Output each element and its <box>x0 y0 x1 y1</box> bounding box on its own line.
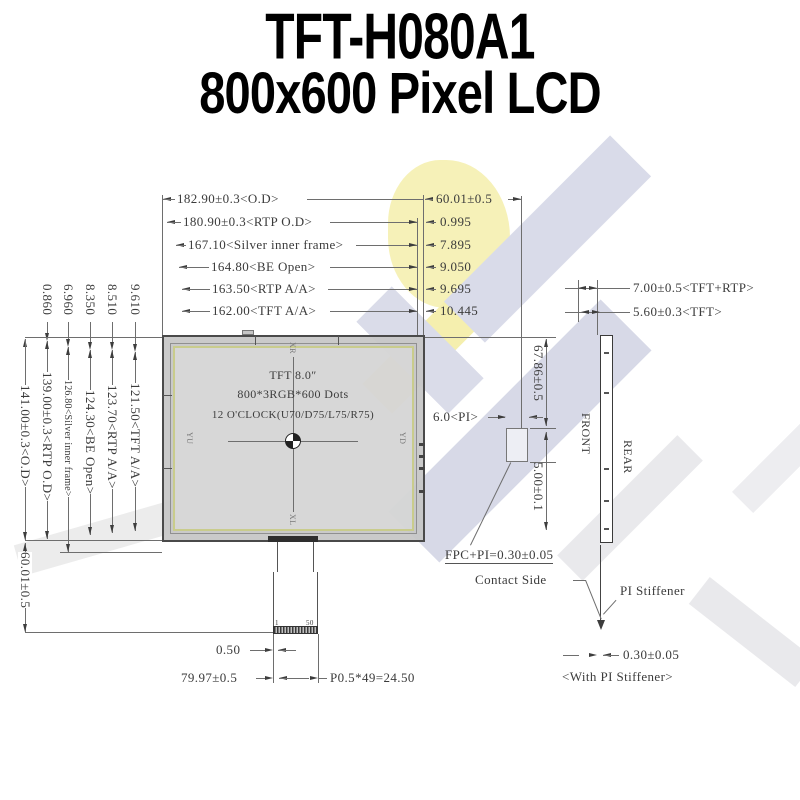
panel-size-label: TFT 8.0″ <box>223 368 363 382</box>
dim-pitch: P0.5*49=24.50 <box>330 671 415 685</box>
dimension-line <box>167 222 181 223</box>
extension-line <box>25 337 162 338</box>
fpc-pin1-label: 1 <box>275 616 279 630</box>
arrowhead <box>45 341 49 349</box>
arrowhead <box>589 653 597 657</box>
fpc-pin50-label: 50 <box>306 616 314 630</box>
dimension-line <box>426 222 436 223</box>
dimension-line <box>182 289 210 290</box>
dim-tft-aa-width: 162.00<TFT A/A> <box>212 304 316 318</box>
arrowhead <box>409 265 417 269</box>
side-view-tick <box>604 500 609 502</box>
dim-gap-500: 5.00±0.1 <box>531 462 545 511</box>
side-rear-label: REAR <box>621 440 635 474</box>
arrowhead <box>66 347 70 355</box>
arrowhead <box>23 532 27 540</box>
dimension-line <box>182 311 210 312</box>
panel-dots-label: 800*3RGB*600 Dots <box>203 387 383 401</box>
arrowhead <box>66 544 70 552</box>
side-view-body <box>600 335 613 543</box>
arrowhead <box>265 676 273 680</box>
dimension-line <box>426 267 436 268</box>
arrowhead <box>23 624 27 632</box>
dim-fpc-right: 60.01±0.5 <box>436 192 492 206</box>
arrowhead <box>409 309 417 313</box>
bezel-tick <box>255 336 256 345</box>
offset-6960: 6.960 <box>61 284 75 315</box>
dimension-line <box>319 678 327 679</box>
dimension-line <box>546 339 547 426</box>
dim-rtp-od-height: 139.00±0.3<RTP O.D> <box>40 372 54 501</box>
extension-line <box>162 195 163 335</box>
extension-line <box>417 218 418 335</box>
offset-0860: 0.860 <box>40 284 54 315</box>
arrowhead <box>133 523 137 531</box>
arrowhead <box>498 415 506 419</box>
connector-tick <box>419 490 425 493</box>
arrowhead <box>310 676 318 680</box>
extension-line <box>25 632 273 633</box>
dim-rtp-aa-height: 123.70<RTP A/A> <box>105 385 119 489</box>
dim-pi-width: 6.0<PI> <box>433 410 478 424</box>
dim-silver-frame-width: 167.10<Silver inner frame> <box>188 238 343 252</box>
dim-total-thickness: 7.00±0.5<TFT+RTP> <box>633 281 754 295</box>
side-view-tick <box>604 528 609 530</box>
dimension-line <box>529 417 543 418</box>
side-view-tick <box>604 468 609 470</box>
extension-line <box>135 322 136 344</box>
dim-silver-frame-height: 126.80<Silver inner frame> <box>60 380 74 497</box>
dim-be-open-height: 124.30<BE Open> <box>83 390 97 494</box>
direction-label-left: YU <box>182 432 196 444</box>
dim-be-open-width: 164.80<BE Open> <box>211 260 315 274</box>
dimension-line <box>278 650 296 651</box>
dim-rtp-aa-width: 163.50<RTP A/A> <box>212 282 316 296</box>
dimension-line <box>250 650 265 651</box>
dimension-line <box>356 245 417 246</box>
connector-tick <box>419 455 425 458</box>
arrowhead <box>578 286 586 290</box>
arrowhead <box>133 352 137 360</box>
direction-label-bottom: XL <box>285 514 299 525</box>
arrowhead <box>110 525 114 533</box>
dim-offset-7895: 7.895 <box>440 238 471 252</box>
extension-line <box>112 322 113 342</box>
dim-offset-0995: 0.995 <box>440 215 471 229</box>
side-view-tick <box>604 352 609 354</box>
extension-line <box>521 196 522 428</box>
note-fpc-pi: FPC+PI=0.30±0.05 <box>445 548 553 564</box>
direction-label-top: XR <box>285 342 299 354</box>
arrowhead <box>88 527 92 535</box>
panel-clock-label: 12 O'CLOCK(U70/D75/L75/R75) <box>193 408 393 422</box>
arrowhead <box>409 287 417 291</box>
connector-tick <box>419 443 425 446</box>
arrowhead <box>66 339 70 347</box>
product-resolution-title: 800x600 Pixel LCD <box>64 59 736 127</box>
dimension-line <box>256 678 265 679</box>
arrowhead <box>110 342 114 350</box>
arrowhead <box>544 522 548 530</box>
dimension-line <box>330 267 417 268</box>
note-with-stiffener: <With PI Stiffener> <box>562 670 673 684</box>
dim-od-height: 141.00±0.3<O.D> <box>18 385 32 487</box>
extension-line <box>423 195 424 335</box>
offset-8510: 8.510 <box>105 284 119 315</box>
dim-rtp-od-width: 180.90±0.3<RTP O.D> <box>183 215 312 229</box>
extension-line <box>318 634 319 683</box>
connector-tick <box>419 467 425 470</box>
dimension-line <box>307 199 423 200</box>
dim-height-6786: 67.86±0.5 <box>531 345 545 401</box>
dim-050: 0.50 <box>216 643 240 657</box>
dimension-line <box>603 655 619 656</box>
dim-od-width: 182.90±0.3<O.D> <box>177 192 279 206</box>
leader-line <box>603 600 616 615</box>
arrowhead <box>88 350 92 358</box>
arrowhead <box>45 531 49 539</box>
extension-line <box>425 337 556 338</box>
arrowhead <box>88 342 92 350</box>
dim-offset-9050: 9.050 <box>440 260 471 274</box>
arrowhead <box>409 220 417 224</box>
dim-tft-thickness: 5.60±0.3<TFT> <box>633 305 722 319</box>
centroid-symbol <box>285 433 301 449</box>
dimension-line <box>565 288 630 289</box>
dimension-line <box>163 199 175 200</box>
bezel-tick <box>163 395 172 396</box>
bezel-tick <box>163 468 172 469</box>
dimension-line <box>426 289 436 290</box>
dimension-line <box>330 311 417 312</box>
dimension-line <box>426 245 436 246</box>
offset-9610: 9.610 <box>128 284 142 315</box>
dim-7997: 79.97±0.5 <box>181 671 237 685</box>
dim-fpc-length-left: 60.01±0.5 <box>18 552 32 608</box>
note-pi-stiffener: PI Stiffener <box>620 584 685 598</box>
side-front-label: FRONT <box>579 413 593 454</box>
arrowhead <box>23 543 27 551</box>
dimension-line <box>425 199 433 200</box>
dimension-line <box>426 311 436 312</box>
arrowhead <box>544 432 548 440</box>
arrowhead <box>265 648 273 652</box>
arrowhead <box>597 620 605 630</box>
arrowhead <box>513 197 521 201</box>
dim-tft-aa-height: 121.50<TFT A/A> <box>128 383 142 487</box>
dimension-line <box>179 267 209 268</box>
dimension-line <box>546 432 547 530</box>
stiffener-line <box>600 545 601 625</box>
arrowhead <box>544 418 548 426</box>
extension-line <box>60 552 162 553</box>
extension-line <box>90 322 91 342</box>
arrowhead <box>589 286 597 290</box>
dimension-line <box>279 678 309 679</box>
pi-connector-outline <box>506 428 528 462</box>
side-view-tick <box>604 392 609 394</box>
extension-line <box>25 540 162 541</box>
offset-8350: 8.350 <box>83 284 97 315</box>
dim-stiffener-thickness: 0.30±0.05 <box>623 648 679 662</box>
dimension-line <box>328 289 417 290</box>
note-contact-side: Contact Side <box>475 573 547 587</box>
arrowhead <box>592 310 600 314</box>
arrowhead <box>110 350 114 358</box>
dim-offset-9695: 9.695 <box>440 282 471 296</box>
extension-line <box>273 634 274 683</box>
arrowhead <box>409 243 417 247</box>
dimension-line <box>176 245 186 246</box>
dim-offset-10445: 10.445 <box>440 304 478 318</box>
arrowhead <box>581 310 589 314</box>
bezel-tick <box>338 336 339 345</box>
dimension-line <box>330 222 417 223</box>
fpc-tail-upper <box>277 542 314 573</box>
dimension-line <box>563 655 579 656</box>
arrowhead <box>133 344 137 352</box>
leader-line <box>470 462 511 545</box>
direction-label-right: YD <box>395 432 409 444</box>
extension-line <box>530 428 556 429</box>
panel-top-notch <box>242 330 254 335</box>
